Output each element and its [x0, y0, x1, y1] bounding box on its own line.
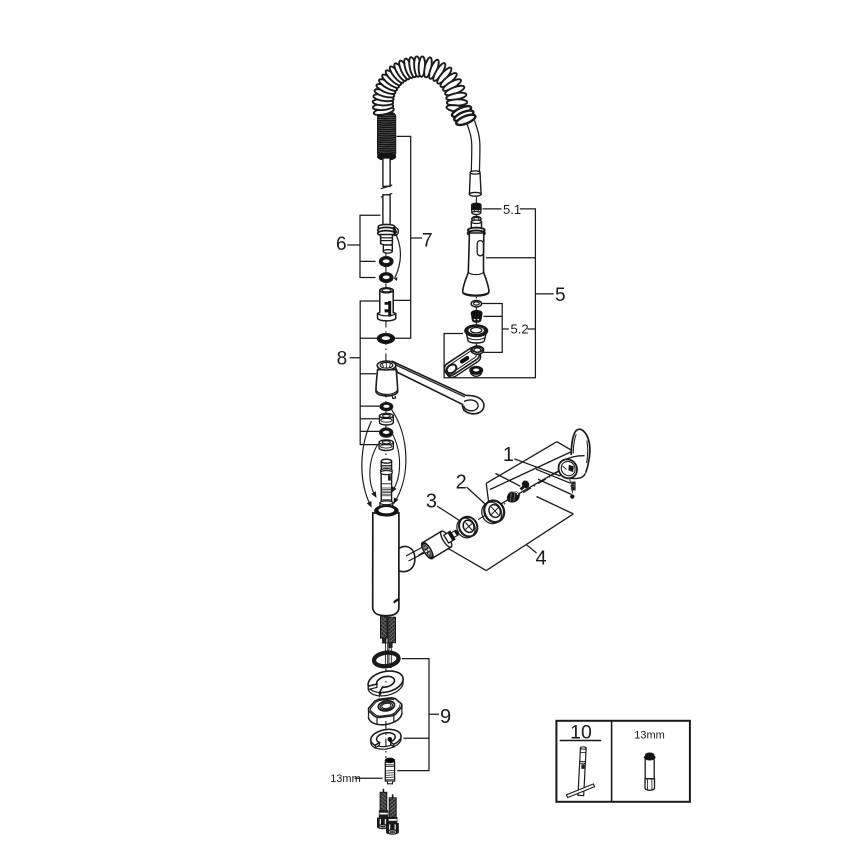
- svg-text:13mm: 13mm: [634, 729, 665, 741]
- svg-text:13mm: 13mm: [330, 773, 361, 785]
- svg-text:2: 2: [456, 472, 467, 494]
- svg-text:8: 8: [337, 349, 348, 370]
- svg-text:1: 1: [503, 444, 514, 466]
- svg-text:4: 4: [535, 548, 546, 570]
- svg-text:6: 6: [336, 234, 347, 255]
- svg-text:5: 5: [555, 285, 566, 306]
- svg-text:9: 9: [440, 706, 451, 728]
- svg-text:5.2: 5.2: [511, 321, 529, 336]
- svg-text:3: 3: [426, 490, 437, 512]
- svg-text:7: 7: [422, 231, 433, 252]
- svg-text:5.1: 5.1: [503, 202, 521, 217]
